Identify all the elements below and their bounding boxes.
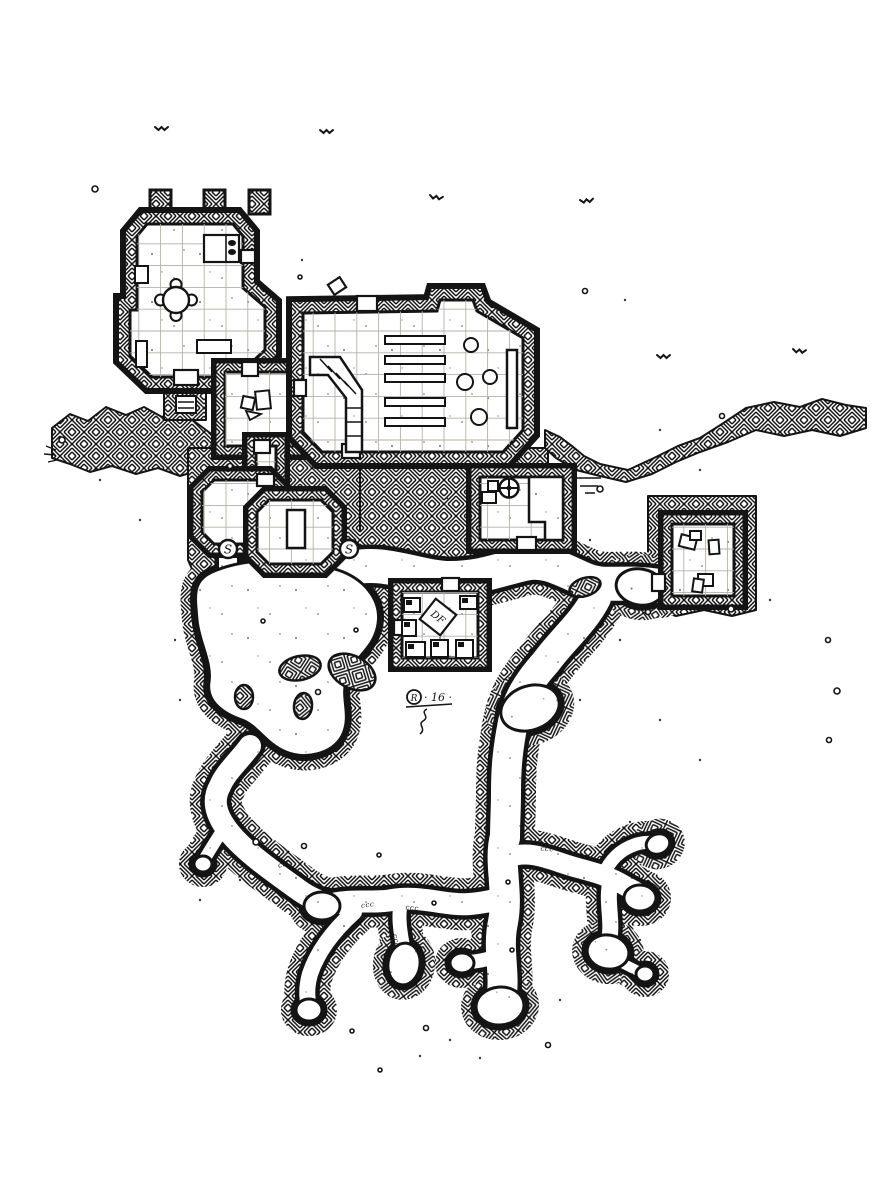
pebble <box>506 880 510 884</box>
chest-icon <box>135 266 148 283</box>
secret-door-marker-left: S <box>219 540 237 558</box>
secret-door-marker-right: S <box>340 540 358 558</box>
cave-pillar <box>235 685 253 709</box>
rock-band <box>545 399 866 482</box>
ink-dot <box>589 539 591 541</box>
sigil-letter: R <box>410 694 418 704</box>
crate-icon <box>255 390 271 409</box>
door-keep-south <box>174 370 198 385</box>
bench-icon <box>385 374 445 382</box>
pebble <box>378 1068 382 1072</box>
ink-dot <box>419 1055 421 1057</box>
door-storeroom-west <box>652 574 665 591</box>
pebble <box>350 1029 354 1033</box>
steps-mark: ccc <box>405 903 419 912</box>
door-barracks-north <box>442 578 459 591</box>
pebble <box>597 486 603 492</box>
door-hall-north <box>357 296 377 311</box>
ink-dot <box>639 939 641 941</box>
ink-dot <box>579 699 581 701</box>
pillow-icon <box>406 600 412 605</box>
table-side-icon <box>197 340 231 353</box>
bench-side-icon <box>136 341 147 367</box>
ink-dot <box>699 469 701 471</box>
pillow-icon <box>228 249 236 255</box>
crate-icon <box>709 540 720 555</box>
ink-dot <box>619 639 621 641</box>
pebble <box>302 844 307 849</box>
cave-chamber <box>194 856 212 872</box>
door-guard-to-hall <box>294 380 306 396</box>
bird-mark <box>155 127 168 130</box>
pebble <box>92 186 98 192</box>
column-icon <box>483 370 497 384</box>
column-icon <box>464 338 478 352</box>
ink-dot <box>769 599 771 601</box>
ink-dot <box>659 719 661 721</box>
bird-mark <box>580 199 593 203</box>
column-icon <box>457 374 473 390</box>
ink-dot <box>179 699 181 701</box>
door-well-south <box>517 537 536 550</box>
crate-icon <box>482 492 496 503</box>
crate-icon <box>241 396 255 410</box>
entry-steps-icon <box>176 396 196 413</box>
ink-dot <box>174 639 176 641</box>
pebble <box>432 901 436 905</box>
pebble <box>316 690 321 695</box>
cave-chamber <box>636 966 654 982</box>
bird-mark <box>430 195 443 200</box>
ink-dot <box>199 899 201 901</box>
ink-dot <box>479 1057 481 1059</box>
ink-dot <box>699 759 701 761</box>
ink-dot <box>629 821 631 823</box>
altar-icon <box>287 510 305 548</box>
pebble <box>646 610 651 615</box>
pillow-icon <box>433 642 439 647</box>
pillow-icon <box>228 240 236 246</box>
pebble <box>228 464 233 469</box>
ink-dot <box>449 1039 451 1041</box>
door-hall-northwest <box>328 277 346 295</box>
bench-icon <box>385 398 445 406</box>
bench-icon <box>385 356 445 364</box>
pebble <box>424 1026 429 1031</box>
pebble <box>827 738 832 743</box>
pillow-icon <box>408 644 414 649</box>
door-corridor-to-octagon <box>257 474 274 486</box>
dungeon-cave-map: ccccccccccccccc S S R · 16 · DF <box>0 0 872 1200</box>
pillow-icon <box>462 598 468 603</box>
crate-icon <box>692 578 704 592</box>
ink-dot <box>446 497 448 499</box>
dungeon-map-page: ccccccccccccccc S S R · 16 · DF <box>0 0 872 1200</box>
round-table-icon <box>163 287 189 313</box>
ink-dot <box>139 519 141 521</box>
door-guard-south <box>254 440 270 453</box>
sigil-scale-text: · 16 · <box>424 691 452 704</box>
pebble <box>377 853 381 857</box>
pebble <box>720 414 725 419</box>
pebble <box>510 948 514 952</box>
pebble <box>728 606 734 612</box>
crenellation-tooth <box>249 190 270 214</box>
pillow-icon <box>404 622 410 627</box>
cave-chamber <box>450 953 474 973</box>
secret-door-label: S <box>345 543 353 557</box>
ink-dot <box>239 879 241 881</box>
crate-icon <box>690 531 701 540</box>
pebble <box>354 628 358 632</box>
pebble <box>253 839 259 845</box>
cave-chamber <box>304 892 340 920</box>
pebble <box>59 437 65 443</box>
ink-dot <box>301 259 303 261</box>
cave-chamber <box>296 999 322 1021</box>
secret-door-label: S <box>224 543 232 557</box>
ink-dot <box>624 299 626 301</box>
sigil-squiggle <box>420 709 427 734</box>
winch-icon <box>488 481 498 491</box>
column-icon <box>471 409 487 425</box>
ink-dot <box>339 959 341 961</box>
door-keep-east <box>241 250 255 263</box>
pebble <box>834 688 840 694</box>
bench-icon <box>385 336 445 344</box>
ink-dot <box>559 999 561 1001</box>
door-keep-to-guard <box>242 362 258 376</box>
steps-mark: ccc <box>540 845 554 854</box>
pebble <box>583 289 588 294</box>
pillow-icon <box>458 642 464 647</box>
pebble <box>261 619 265 623</box>
well-hub <box>507 486 512 491</box>
bed-icon <box>204 235 239 262</box>
bird-mark <box>793 349 806 353</box>
scale-annotation: R · 16 · <box>406 690 452 734</box>
dais-icon <box>507 350 517 428</box>
ink-dot <box>99 479 101 481</box>
ink-dot <box>659 429 661 431</box>
pebble <box>826 638 831 643</box>
bench-icon <box>385 418 445 426</box>
bird-mark <box>657 355 670 358</box>
pebble <box>546 1043 551 1048</box>
cave-chamber <box>624 885 656 911</box>
bird-mark <box>320 130 333 133</box>
pebble <box>298 275 302 279</box>
